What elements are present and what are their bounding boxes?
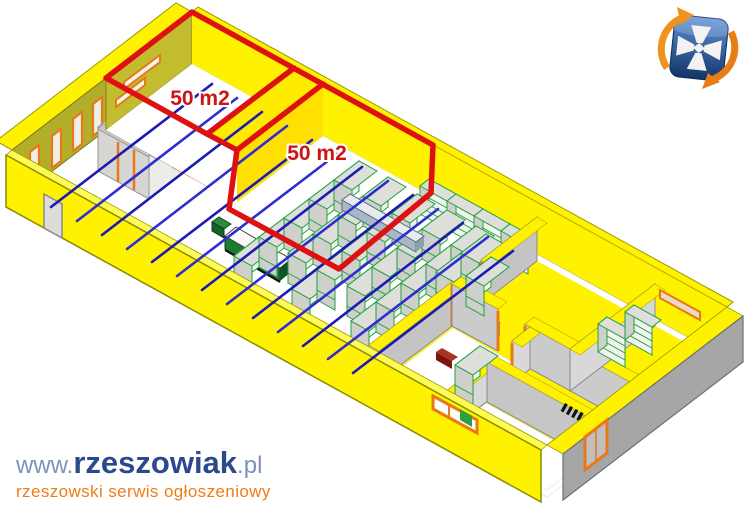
watermark-name: rzeszowiak [73, 445, 237, 480]
room-area-label-1: 50 m2 [170, 87, 230, 110]
floor-plan-image: 50 m2 50 m2 www.rzeszowiak.pl rzeszowski [0, 0, 745, 514]
watermark-suffix: .pl [237, 452, 262, 479]
room-area-label-2: 50 m2 [287, 142, 347, 165]
watermark: www.rzeszowiak.pl rzeszowski serwis ogło… [15, 445, 271, 501]
watermark-prefix: www. [15, 452, 73, 479]
floor-plan-svg: 50 m2 50 m2 www.rzeszowiak.pl rzeszowski [0, 0, 745, 514]
watermark-tagline: rzeszowski serwis ogłoszeniowy [16, 482, 271, 501]
